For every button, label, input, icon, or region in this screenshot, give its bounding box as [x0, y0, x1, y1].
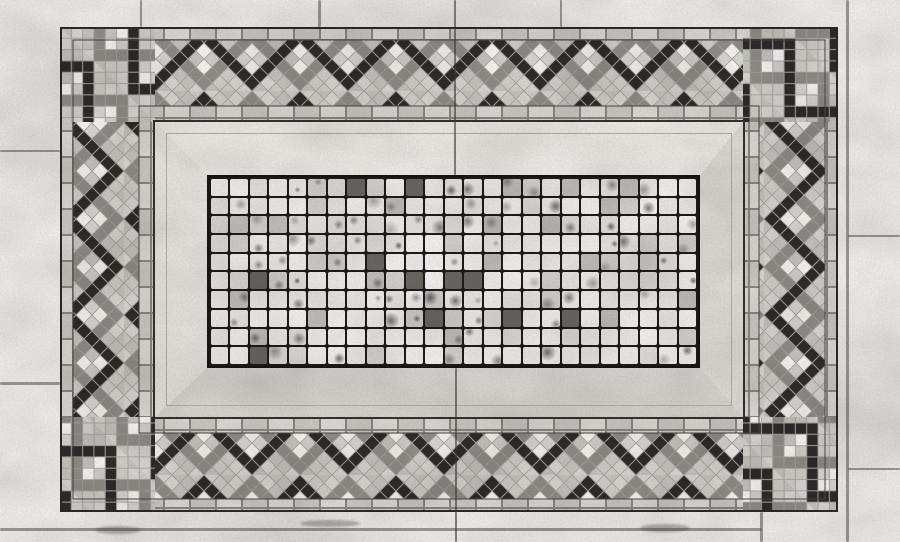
- mosaic-tile: [250, 329, 267, 346]
- mosaic-tile: [581, 291, 598, 308]
- mosaic-tile: [503, 198, 520, 215]
- mosaic-tile: [269, 198, 286, 215]
- mosaic-tile: [250, 254, 267, 271]
- mosaic-tile: [620, 310, 637, 327]
- mosaic-tile: [328, 198, 345, 215]
- mosaic-tile: [640, 216, 657, 233]
- mosaic-tile: [640, 254, 657, 271]
- mosaic-tile: [230, 198, 247, 215]
- mosaic-tile: [386, 310, 403, 327]
- mosaic-tile: [289, 272, 306, 289]
- mosaic-tile: [562, 216, 579, 233]
- mosaic-tile: [308, 329, 325, 346]
- mosaic-tile: [562, 291, 579, 308]
- mosaic-tile: [211, 254, 228, 271]
- mosaic-tile: [386, 216, 403, 233]
- mosaic-tile: [367, 347, 384, 364]
- mosaic-tile: [386, 179, 403, 196]
- mosaic-tile: [523, 254, 540, 271]
- mosaic-tile: [620, 179, 637, 196]
- mosaic-tile: [523, 216, 540, 233]
- mosaic-tile: [347, 272, 364, 289]
- mosaic-tile: [484, 272, 501, 289]
- mosaic-tile: [523, 198, 540, 215]
- mosaic-tile: [503, 310, 520, 327]
- mosaic-tile: [679, 347, 696, 364]
- mosaic-tile: [211, 347, 228, 364]
- mosaic-tile: [269, 329, 286, 346]
- mosaic-tile: [542, 347, 559, 364]
- mosaic-tile: [386, 329, 403, 346]
- mosaic-tile: [250, 291, 267, 308]
- mosaic-tile: [640, 179, 657, 196]
- mosaic-tile: [211, 216, 228, 233]
- mosaic-tile: [328, 310, 345, 327]
- mosaic-tile: [659, 291, 676, 308]
- slab-joint: [0, 382, 60, 385]
- mosaic-tile: [562, 235, 579, 252]
- mosaic-tile: [445, 216, 462, 233]
- mosaic-tile: [425, 179, 442, 196]
- mosaic-tile: [289, 216, 306, 233]
- slab-joint: [560, 0, 562, 27]
- mosaic-tile: [269, 235, 286, 252]
- mosaic-tile: [367, 310, 384, 327]
- mosaic-tile: [542, 235, 559, 252]
- mosaic-tile: [347, 216, 364, 233]
- mosaic-tile: [679, 291, 696, 308]
- mosaic-tile: [211, 272, 228, 289]
- mosaic-tile: [484, 179, 501, 196]
- slab-joint: [846, 0, 849, 542]
- mosaic-tile: [601, 347, 618, 364]
- mosaic-tile: [562, 329, 579, 346]
- mosaic-tile: [484, 310, 501, 327]
- mosaic-tile: [484, 329, 501, 346]
- mosaic-tile: [289, 254, 306, 271]
- mosaic-tile: [406, 235, 423, 252]
- mosaic-tile: [679, 179, 696, 196]
- mosaic-tile: [484, 254, 501, 271]
- mosaic-tile: [425, 272, 442, 289]
- mosaic-tile: [640, 198, 657, 215]
- mosaic-tile: [269, 216, 286, 233]
- mosaic-tile: [289, 235, 306, 252]
- mosaic-tile: [484, 291, 501, 308]
- mosaic-tile: [659, 272, 676, 289]
- mosaic-tile: [464, 272, 481, 289]
- mosaic-tile: [503, 216, 520, 233]
- mosaic-tile: [367, 235, 384, 252]
- mosaic-tile: [308, 216, 325, 233]
- mosaic-tile: [367, 291, 384, 308]
- slab-joint: [848, 468, 900, 470]
- mosaic-tile: [211, 198, 228, 215]
- mosaic-tile: [620, 291, 637, 308]
- mosaic-tile: [620, 329, 637, 346]
- mosaic-tile: [250, 179, 267, 196]
- mosaic-tile: [308, 179, 325, 196]
- mosaic-tile: [386, 347, 403, 364]
- mosaic-tile: [601, 291, 618, 308]
- mosaic-tile: [679, 272, 696, 289]
- mosaic-tile: [601, 310, 618, 327]
- mosaic-tile: [289, 310, 306, 327]
- mosaic-tile: [464, 329, 481, 346]
- mosaic-tile: [250, 216, 267, 233]
- mosaic-tile: [211, 235, 228, 252]
- mosaic-tile: [523, 272, 540, 289]
- mosaic-tile: [640, 291, 657, 308]
- mosaic-tile: [503, 179, 520, 196]
- mosaic-tile: [425, 198, 442, 215]
- mosaic-tile: [250, 272, 267, 289]
- mosaic-tile: [542, 254, 559, 271]
- mosaic-tile: [347, 347, 364, 364]
- mosaic-tile: [679, 198, 696, 215]
- mosaic-tile: [562, 347, 579, 364]
- mosaic-tile: [250, 310, 267, 327]
- mosaic-tile: [367, 272, 384, 289]
- mosaic-tile: [269, 310, 286, 327]
- mosaic-tile: [367, 198, 384, 215]
- mosaic-tile: [464, 179, 481, 196]
- mosaic-tile: [211, 291, 228, 308]
- mosaic-tile: [562, 272, 579, 289]
- mosaic-tile: [601, 235, 618, 252]
- mosaic-tile: [679, 310, 696, 327]
- mosaic-tile: [328, 179, 345, 196]
- mosaic-tile: [581, 235, 598, 252]
- stain-blotch: [95, 526, 141, 534]
- mosaic-tile: [328, 254, 345, 271]
- mosaic-tile: [659, 235, 676, 252]
- mosaic-tile: [328, 291, 345, 308]
- mosaic-tile: [523, 329, 540, 346]
- mosaic-tile: [289, 179, 306, 196]
- slab-joint: [318, 0, 321, 27]
- mosaic-tile: [211, 310, 228, 327]
- mosaic-tile: [289, 291, 306, 308]
- mosaic-tile: [425, 254, 442, 271]
- mosaic-tile: [601, 329, 618, 346]
- mosaic-tile: [659, 310, 676, 327]
- mosaic-tile: [308, 254, 325, 271]
- mosaic-tile: [269, 347, 286, 364]
- mosaic-tile: [620, 235, 637, 252]
- slab-joint: [760, 512, 763, 542]
- mosaic-tile: [289, 329, 306, 346]
- mosaic-tile: [445, 254, 462, 271]
- mosaic-tile: [425, 329, 442, 346]
- mosaic-tile: [445, 179, 462, 196]
- mosaic-tile: [640, 310, 657, 327]
- mosaic-tile: [601, 216, 618, 233]
- mosaic-tile: [425, 310, 442, 327]
- mosaic-tile: [640, 329, 657, 346]
- mosaic-tile: [328, 216, 345, 233]
- mosaic-tile: [464, 310, 481, 327]
- mosaic-tile: [542, 310, 559, 327]
- mosaic-tile: [445, 347, 462, 364]
- mosaic-tile: [640, 272, 657, 289]
- mosaic-tile: [347, 329, 364, 346]
- mosaic-tile: [523, 310, 540, 327]
- mosaic-tile: [581, 310, 598, 327]
- mosaic-tile: [250, 198, 267, 215]
- mosaic-tile: [230, 235, 247, 252]
- mosaic-tile: [464, 198, 481, 215]
- mosaic-tile: [659, 254, 676, 271]
- mosaic-tile: [425, 235, 442, 252]
- mosaic-tile: [679, 329, 696, 346]
- mosaic-tile: [445, 291, 462, 308]
- mosaic-tile: [659, 329, 676, 346]
- mosaic-tile: [230, 272, 247, 289]
- mosaic-tile: [230, 254, 247, 271]
- mosaic-tile: [503, 347, 520, 364]
- stain-blotch: [640, 524, 690, 532]
- mosaic-tile: [406, 272, 423, 289]
- mosaic-tile: [386, 235, 403, 252]
- mosaic-tile: [620, 216, 637, 233]
- mosaic-tile: [406, 198, 423, 215]
- mosaic-tile: [386, 198, 403, 215]
- mosaic-tile: [562, 254, 579, 271]
- mosaic-tile: [601, 198, 618, 215]
- mosaic-tile: [230, 216, 247, 233]
- mosaic-tile: [601, 254, 618, 271]
- mosaic-tile: [464, 291, 481, 308]
- mosaic-tile: [230, 179, 247, 196]
- mosaic-tile: [445, 198, 462, 215]
- mosaic-tile: [406, 347, 423, 364]
- slab-joint: [0, 150, 60, 152]
- mosaic-tile: [503, 291, 520, 308]
- mosaic-tile: [464, 347, 481, 364]
- mosaic-tile: [640, 347, 657, 364]
- mosaic-tile: [230, 347, 247, 364]
- mosaic-tile: [347, 179, 364, 196]
- mosaic-tile: [445, 235, 462, 252]
- mosaic-tile: [659, 347, 676, 364]
- mosaic-tile: [581, 198, 598, 215]
- mosaic-tile: [581, 254, 598, 271]
- mosaic-tile: [562, 179, 579, 196]
- mosaic-tile: [679, 254, 696, 271]
- mosaic-tile: [601, 179, 618, 196]
- mosaic-tile: [308, 310, 325, 327]
- mosaic-tile: [269, 291, 286, 308]
- mosaic-tile: [308, 235, 325, 252]
- mosaic-tile: [464, 216, 481, 233]
- mosaic-tile-grid: [207, 175, 700, 368]
- mosaic-tile: [308, 291, 325, 308]
- mosaic-tile: [445, 310, 462, 327]
- mosaic-tile: [679, 216, 696, 233]
- mosaic-tile: [620, 347, 637, 364]
- mosaic-tile: [659, 198, 676, 215]
- mosaic-tile: [503, 329, 520, 346]
- mosaic-tile: [406, 329, 423, 346]
- mosaic-tile: [620, 198, 637, 215]
- mosaic-tile: [425, 347, 442, 364]
- mosaic-panel-photo: [0, 0, 900, 542]
- mosaic-tile: [581, 272, 598, 289]
- mosaic-tile: [250, 347, 267, 364]
- mosaic-tile: [406, 310, 423, 327]
- mosaic-tile: [328, 272, 345, 289]
- mosaic-tile: [523, 291, 540, 308]
- mosaic-tile: [230, 310, 247, 327]
- mosaic-tile: [542, 272, 559, 289]
- crack-line: [455, 368, 457, 542]
- mosaic-tile: [445, 272, 462, 289]
- mosaic-tile: [367, 254, 384, 271]
- mosaic-tile: [211, 329, 228, 346]
- mosaic-tile: [620, 254, 637, 271]
- mosaic-tile: [308, 272, 325, 289]
- mosaic-tile: [367, 179, 384, 196]
- mosaic-tile: [347, 235, 364, 252]
- mosaic-tile: [347, 310, 364, 327]
- mosaic-tile: [484, 235, 501, 252]
- mosaic-tile: [562, 198, 579, 215]
- mosaic-tile: [542, 179, 559, 196]
- mosaic-tile: [406, 179, 423, 196]
- mosaic-tile: [464, 254, 481, 271]
- mosaic-tile: [581, 216, 598, 233]
- mosaic-tile: [581, 179, 598, 196]
- mosaic-tile: [484, 198, 501, 215]
- mosaic-tile: [386, 291, 403, 308]
- mosaic-tile: [523, 347, 540, 364]
- mosaic-tile: [230, 291, 247, 308]
- mosaic-tile: [601, 272, 618, 289]
- mosaic-tile: [542, 216, 559, 233]
- mosaic-tile: [523, 179, 540, 196]
- mosaic-tile: [367, 216, 384, 233]
- mosaic-tile: [269, 179, 286, 196]
- mosaic-tile: [503, 235, 520, 252]
- mosaic-tile: [211, 179, 228, 196]
- mosaic-tile: [523, 235, 540, 252]
- crack-line: [454, 0, 456, 175]
- mosaic-tile: [581, 329, 598, 346]
- mosaic-tile: [328, 235, 345, 252]
- mosaic-tile: [269, 272, 286, 289]
- mosaic-tile: [484, 216, 501, 233]
- mosaic-tile: [328, 329, 345, 346]
- mosaic-tile: [289, 347, 306, 364]
- mosaic-tile: [406, 254, 423, 271]
- slab-joint: [140, 0, 142, 27]
- mosaic-tile: [581, 347, 598, 364]
- mosaic-tile: [289, 198, 306, 215]
- mosaic-tile: [347, 198, 364, 215]
- mosaic-tile: [659, 216, 676, 233]
- mosaic-tile: [620, 272, 637, 289]
- mosaic-tile: [542, 291, 559, 308]
- mosaic-tile: [425, 291, 442, 308]
- mosaic-tile: [367, 329, 384, 346]
- mosaic-tile: [542, 198, 559, 215]
- mosaic-tile: [269, 254, 286, 271]
- mosaic-tile: [386, 272, 403, 289]
- mosaic-tile: [406, 291, 423, 308]
- mosaic-tile: [308, 347, 325, 364]
- mosaic-tile: [250, 235, 267, 252]
- mosaic-tile: [328, 347, 345, 364]
- mosaic-tile: [542, 329, 559, 346]
- mosaic-tile: [230, 329, 247, 346]
- mosaic-tile: [679, 235, 696, 252]
- mosaic-tile: [562, 310, 579, 327]
- mosaic-tile: [503, 254, 520, 271]
- mosaic-tile: [445, 329, 462, 346]
- mosaic-tile: [406, 216, 423, 233]
- mosaic-tile: [347, 291, 364, 308]
- mosaic-tile: [503, 272, 520, 289]
- mosaic-tile: [386, 254, 403, 271]
- mosaic-tile: [308, 198, 325, 215]
- mosaic-tile: [484, 347, 501, 364]
- mosaic-tile: [464, 235, 481, 252]
- stain-blotch: [300, 520, 360, 527]
- slab-joint: [848, 235, 900, 237]
- mosaic-tile: [347, 254, 364, 271]
- mosaic-tile: [659, 179, 676, 196]
- mosaic-tile: [425, 216, 442, 233]
- mosaic-tile: [640, 235, 657, 252]
